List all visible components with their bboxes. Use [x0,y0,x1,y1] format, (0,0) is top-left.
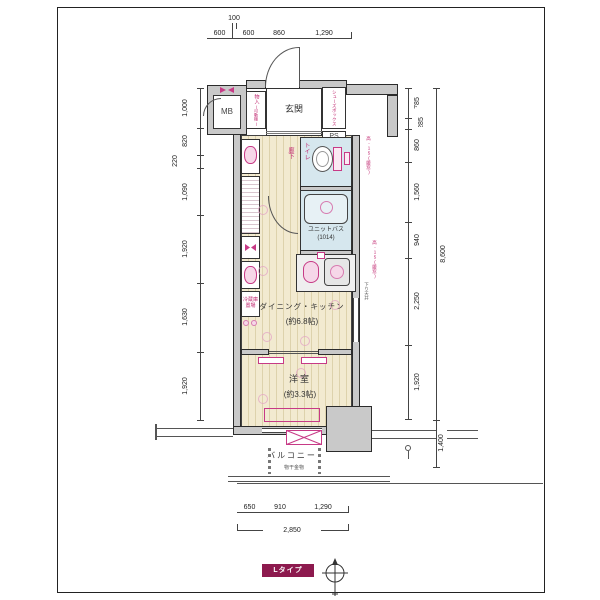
balcony-edge-line [228,476,390,477]
ext-line-left-1 [155,428,233,429]
kitchen-burner-icon [330,265,344,279]
type-badge-label: Lタイプ [262,564,314,577]
drain-stem [408,451,409,459]
structural-block [326,406,372,452]
dim-left-1920b: 1,920 [181,368,191,404]
storage-label: 物入 [254,94,259,104]
dim-line-right [408,88,409,420]
entry-door-leaf [299,47,300,87]
beam-note: 下り天井 [364,282,369,300]
hatch-box-icon [286,430,322,445]
stove-glyph-1 [243,320,249,326]
toilet-tank [333,147,342,171]
dim-right-8600: 8,600 [439,234,449,274]
dim-right-2250: 2,250 [413,283,423,319]
entry-step-line [266,131,322,134]
bath-size-label: (1014) [302,235,350,242]
dim-top-1290: 1,290 [297,29,351,38]
dim-right-1400: 1,400 [437,425,447,461]
sliding-door-label [258,357,284,364]
ext-line-left-end [155,424,157,440]
storage-box: 物入 (可動棚) [246,91,266,129]
type-badge: Lタイプ [262,564,314,577]
toilet-bowl-inner [316,151,329,167]
dim-bottom-910: 910 [262,503,298,512]
bedroom-fixture [264,408,320,422]
dim-left-820: 820 [181,123,191,159]
toilet-label: トイレ [303,142,309,160]
window-note-top: 高-15(腰窓) [366,136,371,175]
entry-wall-left [246,80,266,89]
shelf-strip [241,176,260,234]
vanity-basin-icon [244,146,257,164]
dim-top-860: 860 [261,29,297,38]
dim-left-220: 220 [171,143,181,179]
balcony-divider-mark [268,448,271,474]
entrance-label: 玄関 [267,105,321,115]
downlight-icon [258,394,268,404]
ground-line [237,483,543,484]
floor-plan: MB 玄関 物入 (可動棚) シューズボックス PS 廊下 トイレ ユニットバス… [0,0,600,600]
downlight-icon [300,336,310,346]
entry-floor: 玄関 [266,88,322,136]
bedroom-label: 洋室 [276,375,324,385]
dim-left-1630: 1,630 [181,299,191,335]
exterior-wall-top [346,84,398,95]
dk-bedroom-wall-right [318,349,352,355]
downlight-icon [258,205,268,215]
dim-left-1000: 1,000 [181,90,191,126]
dim-line-top [207,38,352,39]
shoebox-label: シューズボックス [332,90,337,126]
balcony-divider-mark [318,448,321,474]
sliding-door-label [301,357,327,364]
downlight-icon [330,300,340,310]
basin-icon [244,266,257,284]
kitchen-mixer-box [317,252,325,259]
storage-note: (可動棚) [254,104,258,126]
bedroom-size-label: (約3.3帖) [272,391,328,400]
dim-top-600a: 600 [207,29,232,38]
dk-bedroom-wall-left [241,349,269,355]
downlight-icon [258,266,268,276]
dim-right-1920: 1,920 [413,364,423,400]
dim-bottom-1290: 1,290 [298,503,348,512]
kitchen-sink-icon [303,261,319,283]
left-wall [233,133,241,435]
laundry-hw-label: 物干金物 [274,466,314,472]
downlight-icon [262,332,272,342]
dim-top-100: 100 [222,14,246,23]
ext-line-left-2 [155,436,233,437]
ext-line-right-2 [372,438,478,439]
dim-right-940: 940 [413,222,423,258]
exterior-wall-side [387,95,398,137]
dim-line-bottom [237,512,348,513]
dim-bottom-2850: 2,850 [263,526,321,535]
dim-line-right-outer [436,88,437,467]
dim-left-1090: 1,090 [181,174,191,210]
bath-label: ユニットバス [302,227,350,234]
meter-icon [219,86,235,94]
washing-machine-icon [244,243,257,252]
toilet-remote [344,152,350,165]
shoebox: シューズボックス [322,87,346,129]
dim-right-860: 860 [413,127,423,163]
dim-top-600b: 600 [236,29,261,38]
dim-bottom-650: 650 [237,503,262,512]
dim-right-1560: 1,560 [413,174,423,210]
compass-icon [318,556,352,598]
sliding-door-line [269,351,318,354]
dim-line-left [200,88,201,420]
dk-size-label: (約6.8帖) [252,318,352,327]
ext-line-right-1 [372,430,478,431]
bath-drain-icon [320,201,333,214]
hall-label: 廊下 [287,147,293,159]
dim-left-1920a: 1,920 [181,231,191,267]
window-note-mid: 高-15(腰窓) [372,240,377,279]
balcony-label: バルコニー [262,452,322,461]
balcony-edge-line2 [228,481,390,482]
